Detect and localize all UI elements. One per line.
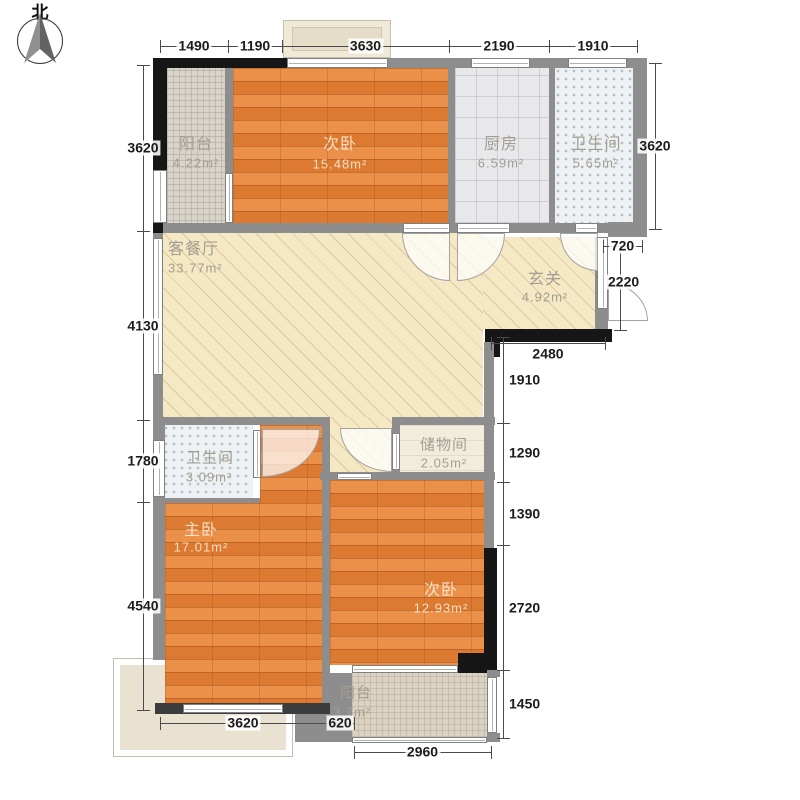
dim-tick: [491, 746, 492, 759]
dim-label-2480: 2480: [530, 347, 565, 362]
bedroom-divider-wall: [322, 480, 330, 703]
room-label-bathroom-north: 卫生间: [570, 130, 621, 154]
dim-label-4130: 4130: [125, 318, 160, 333]
master-bottom-window: [183, 704, 283, 713]
dim-tick: [614, 330, 627, 331]
dim-tick: [228, 40, 229, 53]
left-wall-low2: [153, 500, 165, 660]
bedroom-north-door-opening: [403, 223, 450, 233]
dim-tick: [491, 337, 492, 350]
dim-tick: [649, 229, 662, 230]
room-label-living-dining: 客餐厅: [168, 235, 219, 259]
dim-tick: [549, 40, 550, 53]
balcony-right-rail: [487, 677, 497, 733]
compass: 北: [8, 0, 72, 72]
room-area-kitchen: 6.59m²: [478, 156, 524, 171]
band-bottom-wall-d: [598, 223, 608, 233]
dim-tick: [354, 746, 355, 759]
dim-tick: [137, 65, 150, 66]
dim-tick: [649, 63, 662, 64]
dim-label-2960: 2960: [405, 745, 440, 760]
room-label-bathroom-south: 卫生间: [186, 447, 234, 468]
room-area-balcony-north: 4.22m²: [173, 156, 219, 171]
step-wall: [608, 222, 647, 237]
bay-base-window: [287, 58, 388, 68]
floor-plan: 北 14901190363021901910362041301780454036…: [0, 0, 800, 800]
dim-label-3630: 3630: [348, 39, 383, 54]
living-left-window: [153, 238, 163, 375]
room-area-bathroom-north: 5.65m²: [573, 156, 619, 171]
kitchen-top-window: [471, 58, 530, 68]
dim-tick: [137, 231, 150, 232]
dim-tick: [637, 40, 638, 53]
room-area-bedroom-north: 15.48m²: [313, 157, 368, 172]
corridor-bedroom-opening: [337, 473, 372, 480]
bath-north-door-opening: [575, 223, 598, 233]
dim-line-2720: [503, 545, 504, 670]
band-bottom-wall-a: [163, 223, 403, 233]
room-area-bathroom-south: 3.09m²: [186, 470, 232, 485]
right-mid-wall: [484, 342, 494, 548]
room-area-living-dining: 33.77m²: [168, 261, 223, 276]
dim-tick: [137, 710, 150, 711]
dim-label-4540: 4540: [125, 599, 160, 614]
band-bottom-wall-c: [510, 223, 575, 233]
balcony-south-floor: [352, 673, 487, 737]
dim-tick: [354, 717, 355, 730]
bedroom-kitchen-wall: [448, 68, 455, 223]
dim-tick: [497, 337, 510, 338]
band-bottom-wall-b: [450, 223, 457, 233]
dim-label-1910: 1910: [575, 39, 610, 54]
bath-south-door-jamb: [253, 430, 261, 478]
dim-label-3620: 3620: [225, 716, 260, 731]
dim-label-1290: 1290: [507, 445, 542, 460]
dim-tick: [497, 482, 510, 483]
room-area-storage: 2.05m²: [421, 456, 467, 471]
room-label-bedroom-north: 次卧: [323, 130, 357, 154]
balcony-partition-wall: [225, 68, 233, 173]
mid-wall-east: [392, 417, 495, 425]
balcony-bottom-rail: [352, 737, 487, 743]
dim-tick: [160, 40, 161, 53]
dim-line-1450: [503, 670, 504, 738]
bathroom-south-bottom-wall: [163, 498, 260, 503]
dim-tick: [497, 670, 510, 671]
dim-tick: [160, 717, 161, 730]
dim-tick: [497, 545, 510, 546]
mid-wall-west: [163, 417, 330, 425]
dim-tick: [497, 738, 510, 739]
dim-line-2480: [491, 343, 605, 344]
dim-label-2220: 2220: [606, 275, 641, 290]
dim-tick: [497, 423, 510, 424]
room-area-master-bedroom: 17.01m²: [174, 540, 229, 555]
dim-label-3620: 3620: [637, 139, 672, 154]
dim-label-720: 720: [609, 239, 636, 254]
room-label-kitchen: 厨房: [484, 130, 518, 154]
bath-north-top-window: [568, 58, 627, 68]
dim-label-2720: 2720: [507, 600, 542, 615]
dim-line-1910: [503, 337, 504, 423]
room-label-storage: 储物间: [420, 434, 468, 455]
dim-tick: [137, 502, 150, 503]
room-label-master-bedroom: 主卧: [184, 516, 218, 540]
dim-label-1450: 1450: [507, 697, 542, 712]
dim-label-1490: 1490: [176, 39, 211, 54]
bedroom-south-floor: [330, 480, 484, 665]
bedroom-balcony-window: [352, 665, 458, 673]
dim-label-620: 620: [326, 716, 353, 731]
dim-label-1190: 1190: [238, 39, 272, 54]
partition-window: [225, 173, 233, 223]
room-label-bedroom-south: 次卧: [424, 576, 458, 600]
top-wall-left: [153, 58, 287, 68]
room-label-entry: 玄关: [528, 265, 562, 289]
dim-tick: [449, 40, 450, 53]
balcony-left-window: [153, 170, 167, 223]
dim-label-1780: 1780: [125, 454, 160, 469]
room-area-bedroom-south: 12.93m²: [414, 601, 469, 616]
entry-black-wall: [485, 329, 612, 342]
dim-line-1390: [503, 482, 504, 545]
dim-tick: [603, 240, 604, 253]
dim-tick: [605, 337, 606, 350]
vestibule-right-wall: [322, 425, 330, 480]
balcony-corner-sq1: [487, 670, 500, 677]
storage-door-jamb: [392, 433, 400, 470]
room-label-balcony-south: 阳台: [340, 682, 372, 703]
room-label-balcony-north: 阳台: [179, 130, 213, 154]
dim-label-3620: 3620: [125, 141, 160, 156]
bath-south-left-window: [153, 440, 165, 497]
kitchen-bath-wall: [549, 68, 555, 223]
room-area-entry: 4.92m²: [522, 290, 568, 305]
dim-tick: [642, 240, 643, 253]
kitchen-door-opening: [457, 223, 510, 233]
dim-label-1390: 1390: [507, 506, 542, 521]
dim-label-2190: 2190: [481, 39, 516, 54]
dim-line-1290: [503, 423, 504, 482]
storage-bottom-wall: [392, 472, 495, 480]
dim-tick: [282, 40, 283, 53]
dim-tick: [137, 420, 150, 421]
dim-label-1910: 1910: [507, 373, 542, 388]
